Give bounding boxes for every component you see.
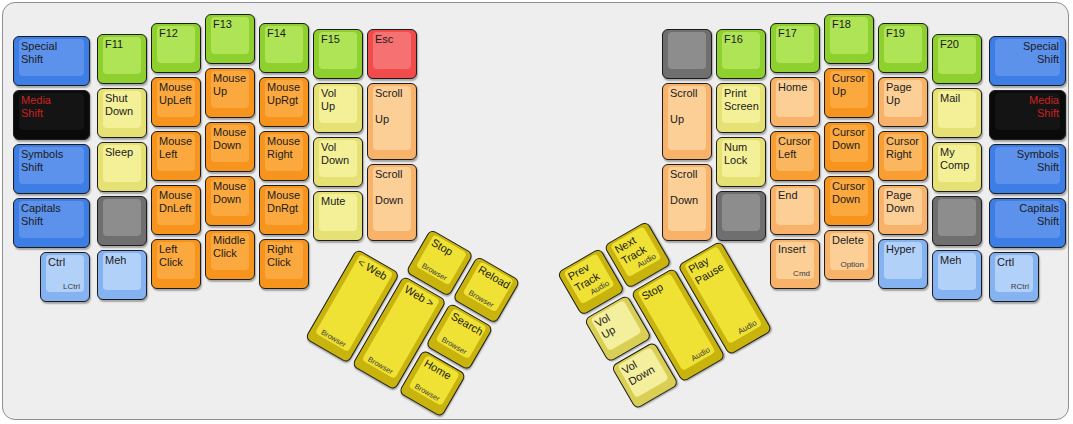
key-label: Home [778, 81, 813, 94]
f18-key[interactable]: F18 [824, 14, 874, 64]
key-label: Sleep [105, 146, 140, 159]
mouse-dnleft-key[interactable]: Mouse DnLeft [151, 185, 201, 235]
insert-key[interactable]: InsertCmd [770, 239, 820, 289]
key-label: F17 [778, 27, 813, 40]
mute-key[interactable]: Mute [313, 191, 363, 241]
key-label: Media Shift [997, 94, 1059, 120]
key-label: Mouse Up [213, 72, 248, 98]
key-label: Mouse UpRgt [267, 81, 302, 107]
f13-key[interactable]: F13 [205, 14, 255, 64]
key-label: Ctrl [48, 256, 83, 269]
key-label: My Comp [940, 146, 975, 172]
key-label: Hyper [886, 243, 921, 256]
delete-key[interactable]: DeleteOption [824, 230, 874, 280]
key-label: Mail [940, 92, 975, 105]
key-label: F13 [213, 18, 248, 31]
esc-key[interactable]: Esc [367, 29, 417, 79]
key-label: Cursor Left [778, 135, 813, 161]
key-label: Cursor Down [832, 126, 867, 152]
key-label: F11 [105, 38, 140, 51]
key-sublabel: Option [831, 260, 864, 269]
key-label: Num Lock [724, 141, 759, 167]
key-sublabel: Cmd [777, 269, 810, 278]
key-sublabel: LCtrl [47, 282, 80, 291]
vol-up-left-key[interactable]: Vol Up [313, 83, 363, 133]
scroll-down-left-key[interactable]: Scroll Down [367, 164, 417, 241]
key-label: F18 [832, 18, 867, 31]
key-label: Shut Down [105, 92, 140, 118]
cursor-down-upper-key[interactable]: Cursor Down [824, 122, 874, 172]
key-label: Vol Down [321, 141, 356, 167]
page-down-key[interactable]: Page Down [878, 185, 928, 235]
cursor-up-key[interactable]: Cursor Up [824, 68, 874, 118]
key-label: Mute [321, 195, 356, 208]
f17-key[interactable]: F17 [770, 23, 820, 73]
mouse-dnrgt-key[interactable]: Mouse DnRgt [259, 185, 309, 235]
sleep-key[interactable]: Sleep [97, 142, 147, 192]
f19-key[interactable]: F19 [878, 23, 928, 73]
blank-right-bottom-key[interactable] [932, 196, 982, 246]
key-label: Cursor Up [832, 72, 867, 98]
key-label: Symbols Shift [21, 148, 83, 174]
symbols-shift-left-key[interactable]: Symbols Shift [13, 144, 90, 194]
key-label: Special Shift [21, 40, 83, 66]
print-screen-key[interactable]: Print Screen [716, 83, 766, 133]
mail-key[interactable]: Mail [932, 88, 982, 138]
mouse-right-key[interactable]: Mouse Right [259, 131, 309, 181]
my-comp-key[interactable]: My Comp [932, 142, 982, 192]
key-label: Vol Up [321, 87, 356, 113]
key-label: Mouse UpLeft [159, 81, 194, 107]
f11-key[interactable]: F11 [97, 34, 147, 84]
keycap-top-surface [938, 199, 976, 236]
blank-right-top-key[interactable] [662, 29, 712, 79]
key-label: Mouse Left [159, 135, 194, 161]
meh-left-key[interactable]: Meh [97, 250, 147, 300]
scroll-up-left-key[interactable]: Scroll Up [367, 83, 417, 160]
keycap-top-surface [668, 32, 706, 69]
key-label: Delete [832, 234, 867, 247]
scroll-down-right-key[interactable]: Scroll Down [662, 164, 712, 241]
hyper-key[interactable]: Hyper [878, 239, 928, 289]
right-click-key[interactable]: Right Click [259, 239, 309, 289]
key-label: F12 [159, 27, 194, 40]
key-label: Mouse Down [213, 126, 248, 152]
key-label: F15 [321, 33, 356, 46]
key-sublabel: RCtrl [996, 282, 1029, 291]
keycap-top-surface [103, 199, 141, 236]
meh-right-key[interactable]: Meh [932, 250, 982, 300]
end-key[interactable]: End [770, 185, 820, 235]
key-label: Insert [778, 243, 813, 256]
key-label: Mouse DnRgt [267, 189, 302, 215]
mouse-up-key[interactable]: Mouse Up [205, 68, 255, 118]
cursor-down-lower-key[interactable]: Cursor Down [824, 176, 874, 226]
key-label: F16 [724, 33, 759, 46]
mouse-upleft-key[interactable]: Mouse UpLeft [151, 77, 201, 127]
key-label: Scroll Up [670, 87, 705, 126]
key-label: Media Shift [21, 94, 83, 120]
key-label: End [778, 189, 813, 202]
key-label: Esc [375, 33, 410, 46]
f12-key[interactable]: F12 [151, 23, 201, 73]
left-click-key[interactable]: Left Click [151, 239, 201, 289]
mouse-uprgt-key[interactable]: Mouse UpRgt [259, 77, 309, 127]
key-label: Special Shift [997, 40, 1059, 66]
keycap-top-surface [722, 194, 760, 231]
special-shift-right-key[interactable]: Special Shift [989, 36, 1066, 86]
scroll-up-right-key[interactable]: Scroll Up [662, 83, 712, 160]
key-label: Cursor Down [832, 180, 867, 206]
f14-key[interactable]: F14 [259, 23, 309, 73]
key-label: Mouse Down [213, 180, 248, 206]
key-label: F20 [940, 38, 975, 51]
key-label: Print Screen [724, 87, 759, 113]
ctrl-left-key[interactable]: CtrlLCtrl [40, 252, 90, 302]
key-label: Mouse Right [267, 135, 302, 161]
key-label: Cursor Right [886, 135, 921, 161]
key-label: Meh [105, 254, 140, 267]
special-shift-left-key[interactable]: Special Shift [13, 36, 90, 86]
cursor-left-key[interactable]: Cursor Left [770, 131, 820, 181]
crtl-right-key[interactable]: CrtlRCtrl [989, 252, 1039, 302]
key-label: Scroll Up [375, 87, 410, 126]
mouse-down-lower-key[interactable]: Mouse Down [205, 176, 255, 226]
key-label: Capitals Shift [21, 202, 83, 228]
media-shift-right-key[interactable]: Media Shift [989, 90, 1066, 140]
media-shift-left-key[interactable]: Media Shift [13, 90, 90, 140]
f16-key[interactable]: F16 [716, 29, 766, 79]
page-up-key[interactable]: Page Up [878, 77, 928, 127]
f20-key[interactable]: F20 [932, 34, 982, 84]
mouse-down-upper-key[interactable]: Mouse Down [205, 122, 255, 172]
key-label: Page Down [886, 189, 921, 215]
symbols-shift-right-key[interactable]: Symbols Shift [989, 144, 1066, 194]
num-lock-key[interactable]: Num Lock [716, 137, 766, 187]
key-label: Crtl [997, 256, 1032, 269]
key-label: Meh [940, 254, 975, 267]
key-label: Mouse DnLeft [159, 189, 194, 215]
home-key[interactable]: Home [770, 77, 820, 127]
capitals-shift-right-key[interactable]: Capitals Shift [989, 198, 1066, 248]
key-label: Capitals Shift [997, 202, 1059, 228]
blank-left-key[interactable] [97, 196, 147, 246]
vol-down-left-key[interactable]: Vol Down [313, 137, 363, 187]
key-label: F14 [267, 27, 302, 40]
keyboard-case: Special ShiftMedia ShiftSymbols ShiftCap… [2, 2, 1069, 420]
key-label: Page Up [886, 81, 921, 107]
key-label: Scroll Down [670, 168, 705, 207]
key-label: Right Click [267, 243, 302, 269]
capitals-shift-left-key[interactable]: Capitals Shift [13, 198, 90, 248]
key-label: Symbols Shift [997, 148, 1059, 174]
key-label: Middle Click [213, 234, 248, 260]
key-label: Left Click [159, 243, 194, 269]
mouse-left-key[interactable]: Mouse Left [151, 131, 201, 181]
key-label: Scroll Down [375, 168, 410, 207]
f15-key[interactable]: F15 [313, 29, 363, 79]
cursor-right-key[interactable]: Cursor Right [878, 131, 928, 181]
shut-down-key[interactable]: Shut Down [97, 88, 147, 138]
middle-click-key[interactable]: Middle Click [205, 230, 255, 280]
key-label: F19 [886, 27, 921, 40]
blank-right-mid-key[interactable] [716, 191, 766, 241]
